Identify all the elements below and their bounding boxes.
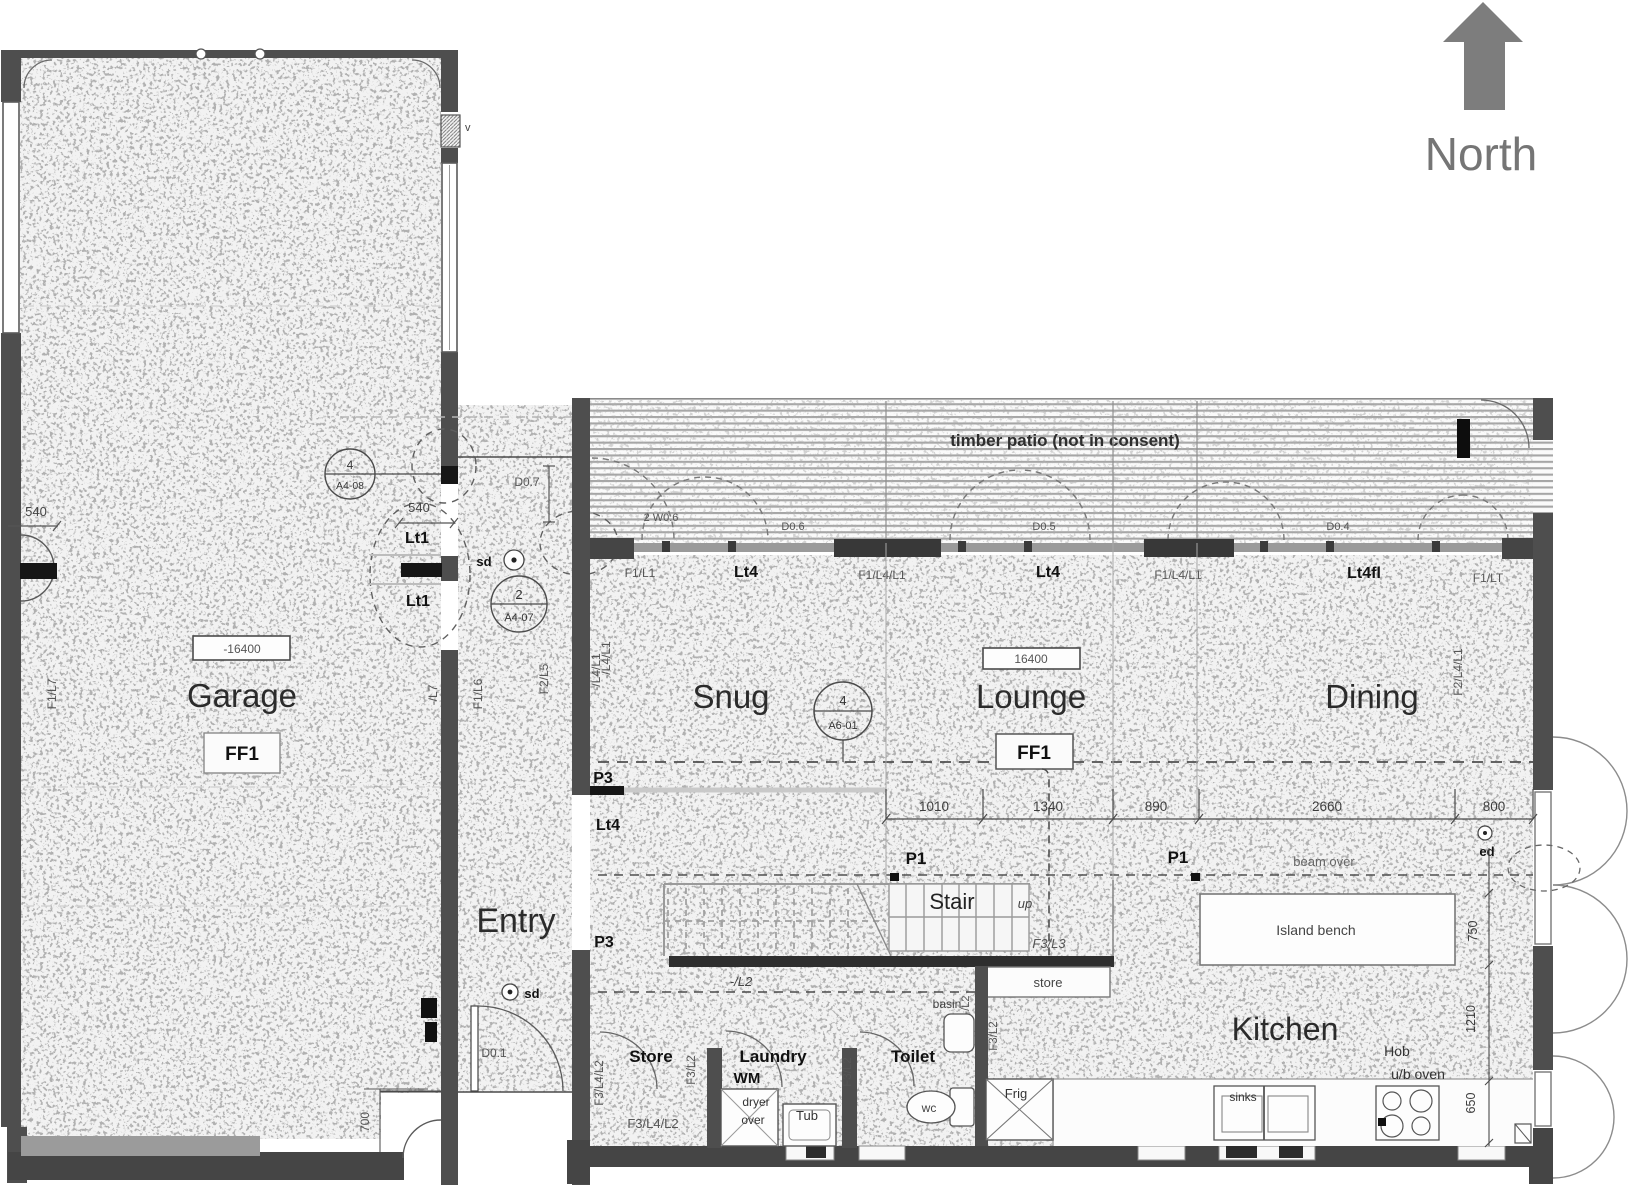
svg-text:4: 4 — [839, 693, 846, 708]
svg-text:540: 540 — [25, 504, 47, 519]
svg-text:-16400: -16400 — [223, 642, 261, 656]
svg-text:D0.7: D0.7 — [514, 475, 540, 489]
svg-text:890: 890 — [1145, 799, 1168, 814]
svg-text:1340: 1340 — [1033, 799, 1063, 814]
svg-text:650: 650 — [1464, 1093, 1478, 1114]
svg-text:Lt4: Lt4 — [734, 564, 758, 581]
svg-text:-/L2: -/L2 — [730, 974, 753, 989]
svg-text:FF1: FF1 — [1017, 743, 1051, 764]
svg-text:wc: wc — [921, 1101, 937, 1115]
svg-text:F1/LT: F1/LT — [1473, 571, 1504, 585]
svg-text:basin: basin — [933, 997, 962, 1011]
svg-text:A4-08: A4-08 — [336, 480, 364, 492]
svg-text:sd: sd — [524, 986, 539, 1001]
svg-text:Lt4fl: Lt4fl — [1347, 565, 1381, 582]
svg-text:F1/L4/L1: F1/L4/L1 — [858, 568, 906, 582]
svg-text:store: store — [1034, 975, 1063, 990]
svg-text:D0.1: D0.1 — [481, 1046, 507, 1060]
svg-text:16400: 16400 — [1014, 652, 1048, 666]
svg-text:F3/L2: F3/L2 — [988, 1021, 1000, 1050]
svg-text:Lt1: Lt1 — [405, 530, 429, 547]
svg-text:P1: P1 — [1168, 848, 1189, 867]
svg-text:Tub: Tub — [796, 1108, 818, 1123]
svg-text:Garage: Garage — [187, 677, 297, 714]
svg-text:Kitchen: Kitchen — [1232, 1011, 1339, 1047]
svg-text:P3: P3 — [594, 934, 614, 951]
svg-text:F3/L4/L2: F3/L4/L2 — [627, 1116, 678, 1131]
svg-text:sd: sd — [476, 554, 491, 569]
svg-text:Frig: Frig — [1005, 1086, 1027, 1101]
svg-text:Snug: Snug — [692, 678, 769, 715]
svg-text:P1: P1 — [906, 849, 927, 868]
svg-text:u/b oven: u/b oven — [1391, 1066, 1445, 1082]
svg-text:over: over — [741, 1113, 764, 1127]
svg-text:-/L2: -/L2 — [960, 996, 972, 1015]
svg-text:F1/L1: F1/L1 — [625, 566, 656, 580]
svg-text:2 W0.6: 2 W0.6 — [644, 512, 679, 524]
svg-text:F1/L6: F1/L6 — [471, 678, 485, 709]
svg-text:Lt1: Lt1 — [406, 593, 430, 610]
svg-text:Dining: Dining — [1325, 678, 1419, 715]
svg-text:F3/L4/L2: F3/L4/L2 — [594, 1060, 606, 1105]
svg-text:ed: ed — [1479, 844, 1494, 859]
svg-text:D0.6: D0.6 — [781, 521, 804, 533]
svg-text:1010: 1010 — [919, 799, 949, 814]
svg-text:F1/L4/L1: F1/L4/L1 — [1154, 568, 1202, 582]
svg-text:Hob: Hob — [1384, 1043, 1410, 1059]
svg-text:Lounge: Lounge — [976, 678, 1086, 715]
svg-text:800: 800 — [1483, 799, 1506, 814]
svg-text:North: North — [1425, 128, 1537, 180]
svg-text:1210: 1210 — [1464, 1005, 1478, 1033]
svg-text:v: v — [465, 122, 471, 134]
svg-text:WM: WM — [734, 1070, 761, 1087]
svg-text:F2/L4/L1: F2/L4/L1 — [1451, 648, 1465, 696]
svg-text:Lt4: Lt4 — [1036, 564, 1060, 581]
svg-text:timber patio (not in consent): timber patio (not in consent) — [950, 431, 1180, 450]
svg-text:F1/L7: F1/L7 — [45, 678, 59, 709]
svg-text:-/L7: -/L7 — [426, 684, 440, 705]
svg-text:F3/L2: F3/L2 — [686, 1055, 698, 1084]
svg-text:Toilet: Toilet — [891, 1047, 935, 1066]
svg-text:P3: P3 — [593, 770, 613, 787]
svg-text:FF1: FF1 — [225, 744, 259, 765]
svg-text:beam over: beam over — [1293, 854, 1355, 869]
svg-text:Lt4: Lt4 — [596, 817, 620, 834]
svg-text:D0.4: D0.4 — [1326, 521, 1349, 533]
svg-text:2660: 2660 — [1312, 799, 1342, 814]
svg-text:up: up — [1018, 896, 1032, 911]
svg-text:sinks: sinks — [1229, 1090, 1256, 1104]
svg-text:Entry: Entry — [476, 902, 555, 940]
svg-text:F3/L3: F3/L3 — [1032, 936, 1066, 951]
svg-text:-/L4/L1: -/L4/L1 — [599, 641, 613, 679]
svg-text:Laundry: Laundry — [739, 1047, 807, 1066]
svg-text:Island bench: Island bench — [1276, 922, 1355, 938]
svg-text:2: 2 — [515, 587, 522, 602]
svg-text:4: 4 — [347, 458, 354, 472]
svg-text:Store: Store — [629, 1047, 672, 1066]
svg-text:750: 750 — [1466, 921, 1480, 942]
svg-text:700: 700 — [358, 1112, 372, 1132]
svg-text:A4-07: A4-07 — [504, 612, 533, 624]
svg-text:D0.5: D0.5 — [1032, 521, 1055, 533]
svg-text:dryer: dryer — [742, 1095, 769, 1109]
svg-text:F2/L5: F2/L5 — [537, 663, 551, 694]
svg-text:540: 540 — [408, 500, 430, 515]
svg-text:F3/L2: F3/L2 — [842, 1057, 854, 1086]
svg-text:Stair: Stair — [929, 889, 974, 914]
svg-text:A6-01: A6-01 — [828, 720, 857, 732]
